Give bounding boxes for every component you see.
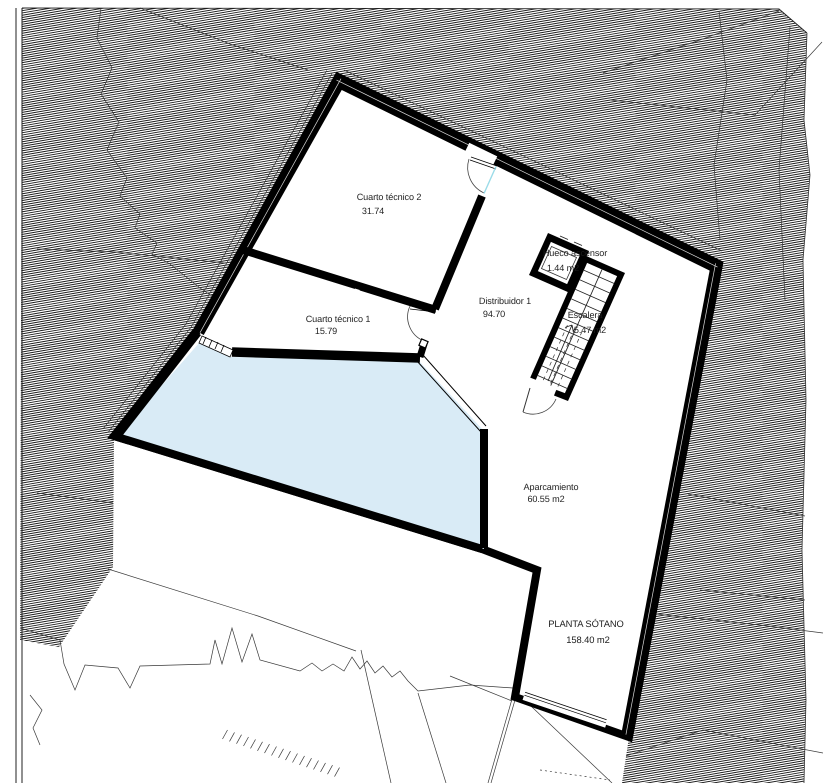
svg-text:158.40 m2: 158.40 m2 bbox=[566, 634, 609, 645]
svg-text:Hueco ascensor: Hueco ascensor bbox=[543, 248, 607, 258]
svg-text:94.70: 94.70 bbox=[483, 309, 505, 319]
svg-text:Escalera: Escalera bbox=[568, 310, 604, 320]
svg-text:15.79: 15.79 bbox=[315, 326, 337, 336]
svg-text:31.74: 31.74 bbox=[362, 206, 384, 216]
svg-text:1.44 m2: 1.44 m2 bbox=[547, 263, 579, 273]
svg-text:5.47 m2: 5.47 m2 bbox=[574, 325, 606, 335]
svg-text:PLANTA SÓTANO: PLANTA SÓTANO bbox=[548, 618, 623, 629]
svg-text:Cuarto técnico 2: Cuarto técnico 2 bbox=[357, 192, 422, 202]
svg-text:60.55 m2: 60.55 m2 bbox=[527, 494, 564, 504]
svg-text:Distribuidor 1: Distribuidor 1 bbox=[479, 296, 531, 306]
svg-text:Cuarto técnico 1: Cuarto técnico 1 bbox=[306, 314, 371, 324]
svg-text:Aparcamiento: Aparcamiento bbox=[524, 482, 579, 492]
